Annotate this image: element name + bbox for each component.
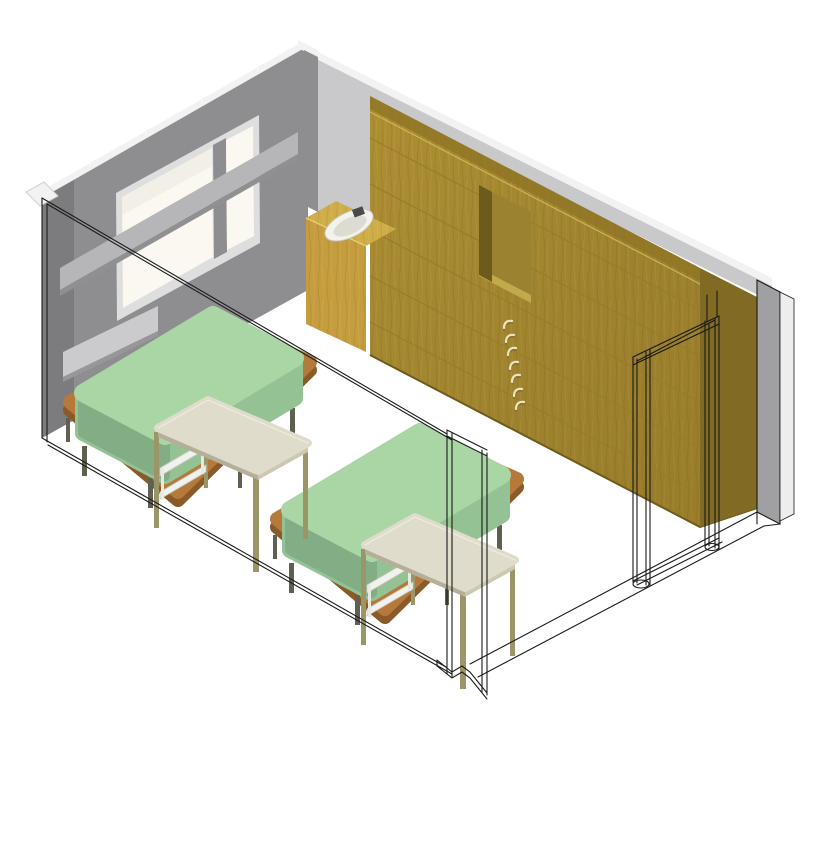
right-wall[interactable] — [757, 280, 794, 524]
right-wall-edge — [780, 292, 794, 521]
door-left-jamb-foot — [633, 580, 649, 588]
niche-left-face — [479, 185, 492, 282]
render-viewport[interactable] — [0, 0, 818, 847]
corner-pier — [304, 50, 318, 212]
side-table-2[interactable] — [361, 517, 515, 689]
right-wall-strip — [757, 280, 780, 524]
axonometric-room-view — [0, 0, 818, 847]
